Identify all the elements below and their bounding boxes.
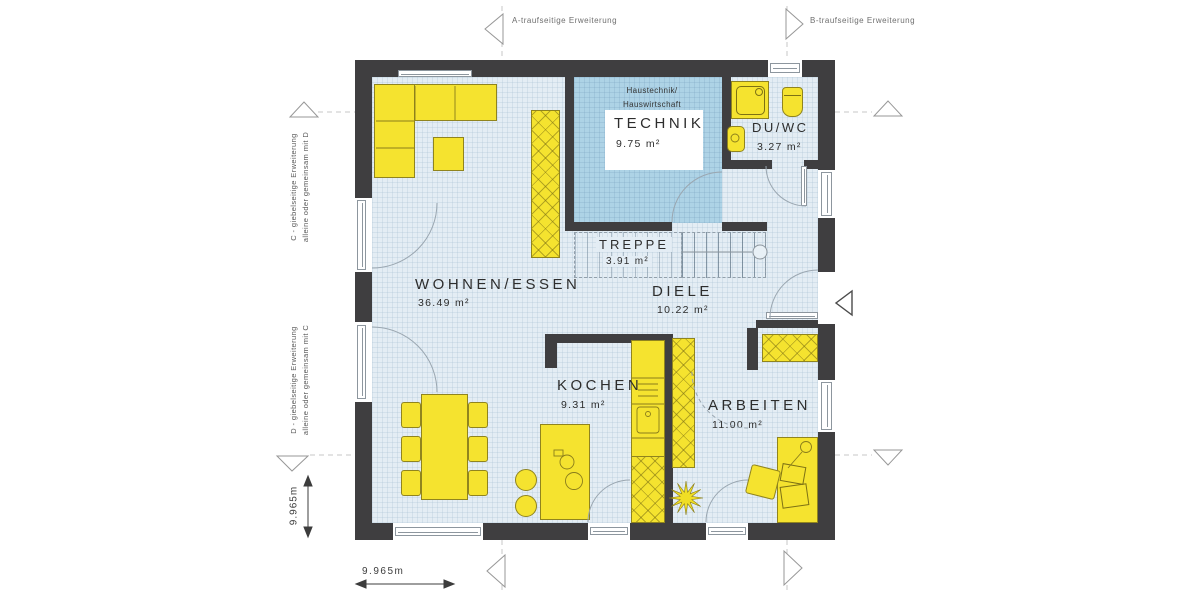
room-label-duwc: DU/WC [752,120,809,135]
desk-papers [780,463,807,485]
stool [515,469,537,491]
wall-stair-top-right [722,222,767,231]
toilet-tank-line [784,95,801,96]
room-area-treppe: 3.91 m² [603,256,652,267]
sofa-vertical [374,84,415,178]
wall-stair-top-left [565,222,672,231]
axis-b-bottom-arrow [784,551,802,585]
wall-exterior-left [355,60,372,540]
axis-a-bottom-arrow [487,555,505,587]
room-label-treppe: TREPPE [596,237,672,252]
room-area-technik: 9.75 m² [616,138,661,150]
window-left-lower [357,325,366,399]
technik-note-line2: Hauswirtschaft [623,100,681,109]
window-bottom [395,527,481,536]
room-label-wohnen: WOHNEN/ESSEN [415,276,580,293]
dining-table [421,394,468,500]
axis-c-label: C - giebelseitige Erweiterung alleine od… [288,102,312,272]
window-right-lower [821,382,832,430]
room-label-technik: TECHNIK [614,115,704,132]
room-area-wohnen: 36.49 m² [418,297,470,309]
stairs-lower-flight [682,232,766,278]
technik-note: Haustechnik/ Hauswirtschaft [592,84,712,111]
wall-arbeiten-stub [747,328,758,370]
window-wohnen-top [398,70,472,77]
technik-note-line1: Haustechnik/ [626,86,677,95]
arbeiten-cabinet [762,334,818,362]
axis-c-right-arrow [874,101,902,116]
floor-plan-page: Haustechnik/ Hauswirtschaft TECHNIK 9.75… [0,0,1200,600]
hall-wardrobe [672,338,695,468]
kitchen-tall-cabinet [631,456,665,523]
axis-c-line1: C - giebelseitige Erweiterung [289,133,298,240]
door-leaf-duwc [801,166,807,206]
window-right-upper [821,172,832,216]
axis-d-right-arrow [874,450,902,465]
shower-drain [755,88,763,96]
chair [468,402,488,428]
chair [401,436,421,462]
stool [515,495,537,517]
wall-duwc-bottom-left [722,160,772,169]
window-left-upper [357,200,366,270]
room-area-kochen: 9.31 m² [561,399,606,411]
door-leaf-entrance [766,312,818,319]
axis-c-line2: alleine oder gemeinsam mit D [301,132,310,242]
room-label-diele: DIELE [652,283,713,300]
room-area-duwc: 3.27 m² [757,141,802,153]
chair [468,470,488,496]
opening-entrance [818,272,835,324]
room-label-arbeiten: ARBEITEN [708,397,811,414]
chair [401,402,421,428]
room-label-kochen: KOCHEN [557,377,642,394]
coffee-table [433,137,464,171]
cabinet-living [531,110,560,258]
door-leaf-terrace-diele [708,527,746,535]
chair [468,436,488,462]
axis-b-top-arrow [786,9,803,39]
wall-wohnen-technik [565,77,574,231]
door-leaf-terrace-kochen [590,527,628,535]
desk-papers [780,483,810,509]
axis-d-line2: alleine oder gemeinsam mit C [301,325,310,435]
wall-technik-duwc [722,77,731,169]
washbasin [727,126,745,152]
axis-d-line1: D - giebelseitige Erweiterung [289,326,298,433]
window-duwc [770,63,800,73]
dimension-bottom-text: 9.965m [362,566,404,577]
axis-b-label: B-traufseitige Erweiterung [810,16,915,25]
dimension-left-text: 9.965m [289,476,300,536]
axis-a-top-arrow [485,14,503,44]
wall-kochen-end-cap [545,334,557,368]
chair [401,470,421,496]
wall-vestibule [756,320,818,328]
toilet [782,87,803,117]
kitchen-island [540,424,590,520]
room-area-arbeiten: 11.00 m² [712,419,763,431]
axis-d-label: D - giebelseitige Erweiterung alleine od… [288,295,312,465]
axis-a-label: A-traufseitige Erweiterung [512,16,617,25]
room-area-diele: 10.22 m² [657,304,709,316]
entrance-arrow [836,291,852,315]
